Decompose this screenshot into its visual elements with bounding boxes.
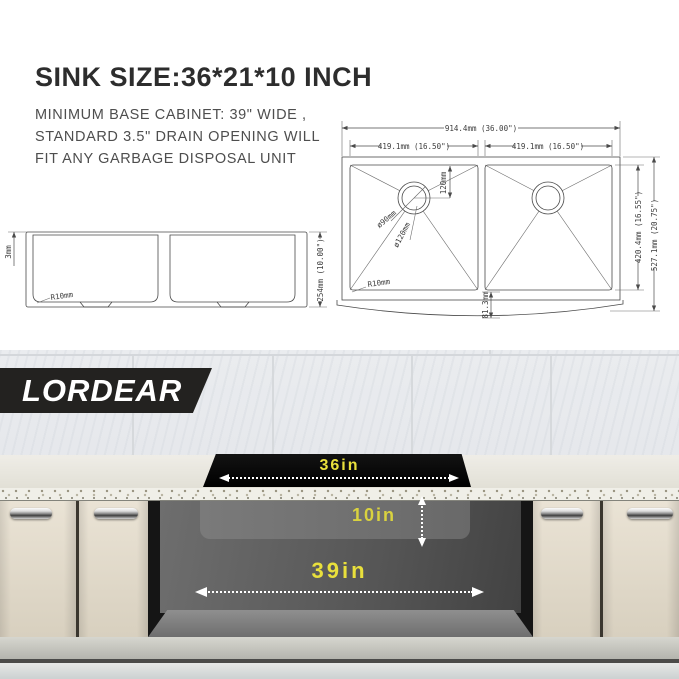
arrow-down-icon (418, 538, 426, 547)
arrow-up-icon (418, 496, 426, 505)
side-view-drawing: 3mm R10mm 254mm (10.00") (4, 232, 327, 307)
door-handle (627, 508, 673, 519)
left-bowl-width-label: 419.1mm (16.50") (378, 142, 450, 151)
drain-outer-diameter-label: ø120mm (391, 220, 412, 249)
top-corner-radius-label: R10mm (367, 277, 391, 289)
cabinet-width-arrow (205, 591, 473, 593)
tile-grout-line (411, 356, 413, 455)
tile-grout-line (272, 356, 274, 455)
arrow-left-icon (195, 587, 207, 597)
sink-depth-label: 10in (352, 505, 396, 526)
sink-width-arrow (228, 477, 450, 479)
arrow-right-icon (449, 474, 459, 482)
cabinet-floor (148, 610, 533, 637)
tile-grout-line (0, 354, 679, 356)
apron-overhang-label: 81.3mm (481, 291, 490, 319)
sink-depth-zone (200, 501, 470, 539)
kitchen-scene: LORDEAR 36in 10in (0, 350, 679, 679)
floor (0, 663, 679, 679)
sink-width-label: 36in (0, 457, 679, 475)
bowl-front-to-back-label: 420.4mm (16.55") (634, 191, 643, 263)
tile-grout-line (550, 356, 552, 455)
door-handle (541, 508, 583, 519)
side-corner-radius-label: R10mm (50, 290, 74, 302)
arrow-left-icon (219, 474, 229, 482)
top-view-drawing: ø90mm ø120mm 120mm R10mm 914.4mm (36.00"… (337, 121, 660, 319)
product-infographic: SINK SIZE:36*21*10 INCH MINIMUM BASE CAB… (0, 0, 679, 679)
brand-banner: LORDEAR (0, 368, 212, 413)
side-height-label: 254mm (10.00") (316, 238, 325, 301)
right-bowl-width-label: 419.1mm (16.50") (512, 142, 584, 151)
door-handle (10, 508, 52, 519)
sink-depth-arrow (421, 503, 423, 539)
counter-edge-granite (0, 488, 679, 501)
side-rim-thickness-label: 3mm (4, 245, 13, 259)
cabinet-width-label: 39in (0, 558, 679, 584)
toe-kick (0, 637, 679, 659)
overall-width-label: 914.4mm (36.00") (445, 124, 517, 133)
brand-logo: LORDEAR (0, 373, 182, 409)
drain-inner-diameter-label: ø90mm (375, 208, 398, 230)
drain-offset-label: 120mm (439, 171, 448, 194)
page-title: SINK SIZE:36*21*10 INCH (35, 62, 372, 93)
arrow-right-icon (472, 587, 484, 597)
overall-front-to-back-label: 527.1mm (20.75") (650, 199, 659, 271)
door-handle (94, 508, 138, 519)
dimension-drawing: 3mm R10mm 254mm (10.00") (0, 95, 679, 345)
